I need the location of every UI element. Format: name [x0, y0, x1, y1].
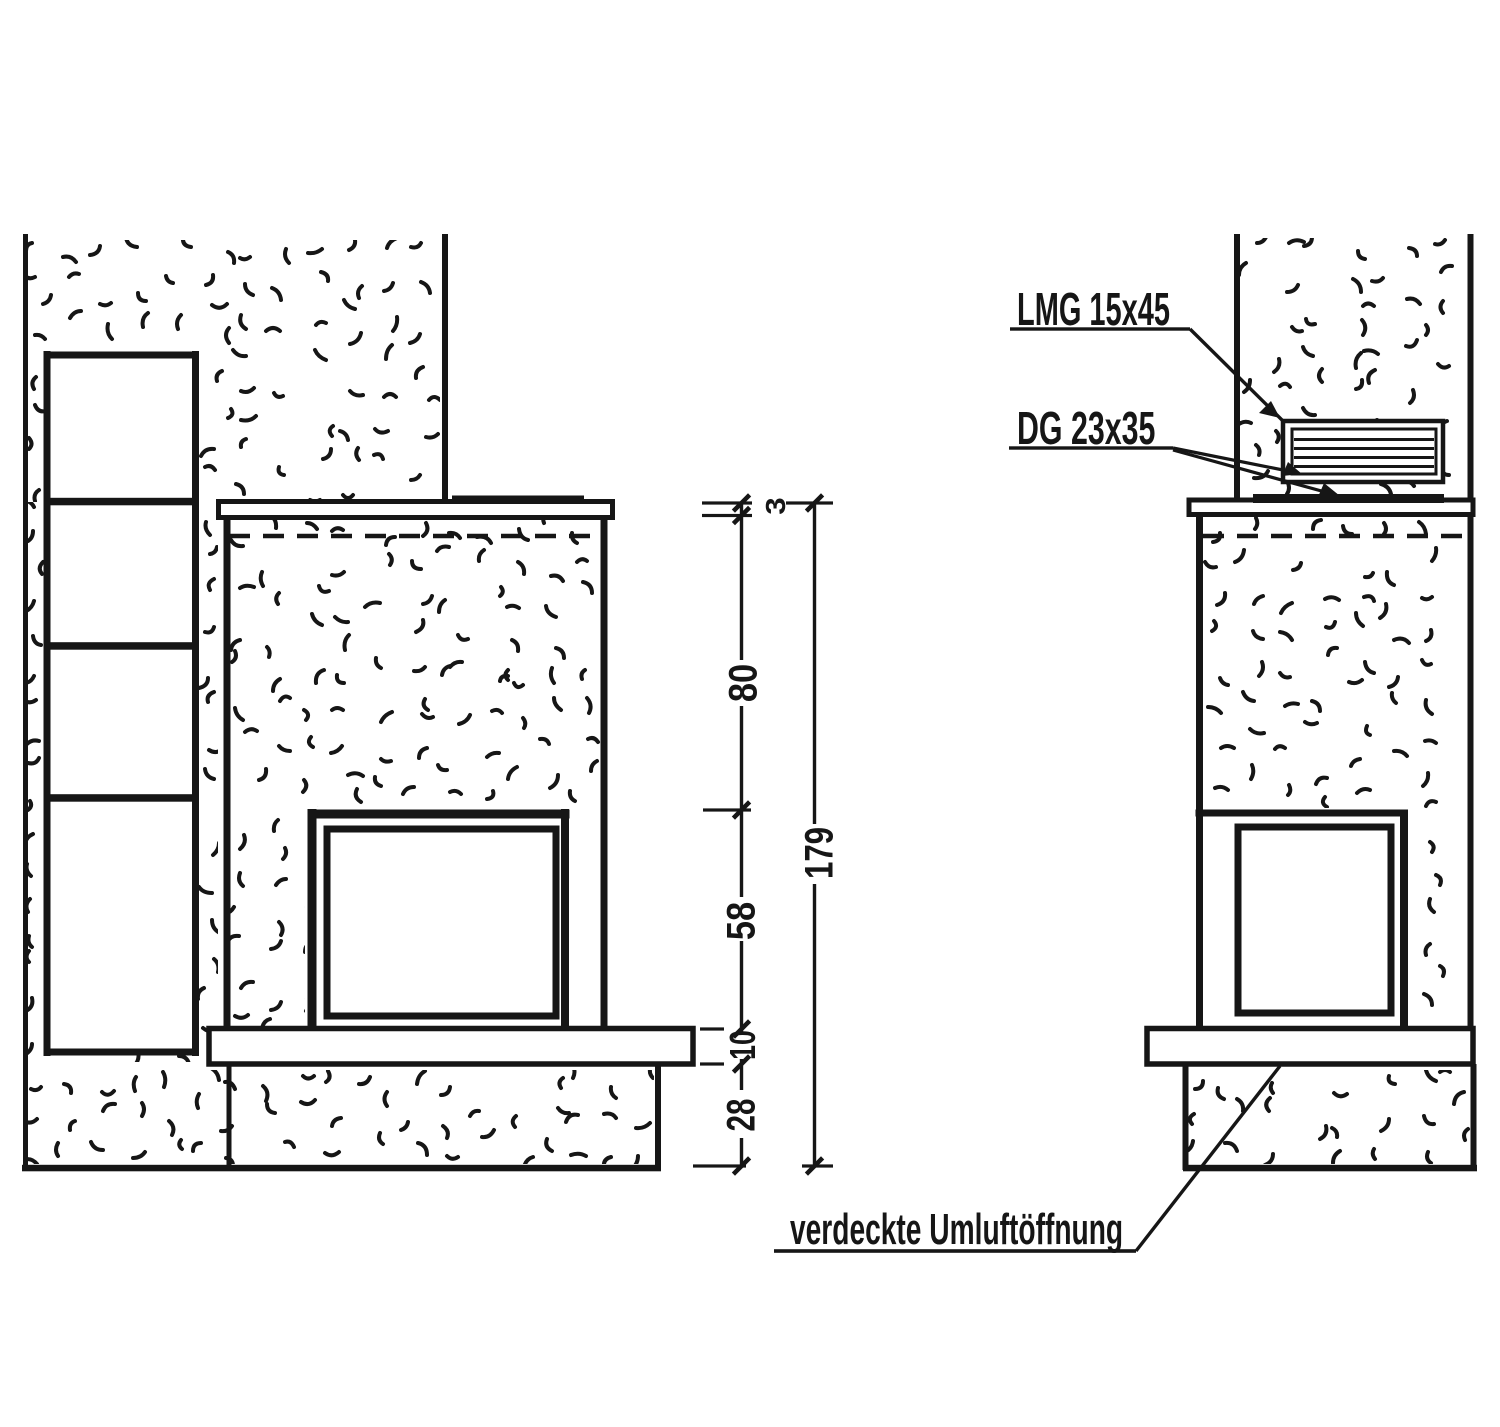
- svg-text:80: 80: [720, 664, 765, 702]
- svg-text:3: 3: [761, 497, 792, 514]
- svg-text:28: 28: [719, 1099, 763, 1132]
- svg-text:58: 58: [718, 902, 763, 940]
- svg-text:10: 10: [722, 1030, 763, 1060]
- svg-text:179: 179: [797, 827, 842, 879]
- svg-text:verdeckte Umluftöffnung: verdeckte Umluftöffnung: [790, 1205, 1123, 1254]
